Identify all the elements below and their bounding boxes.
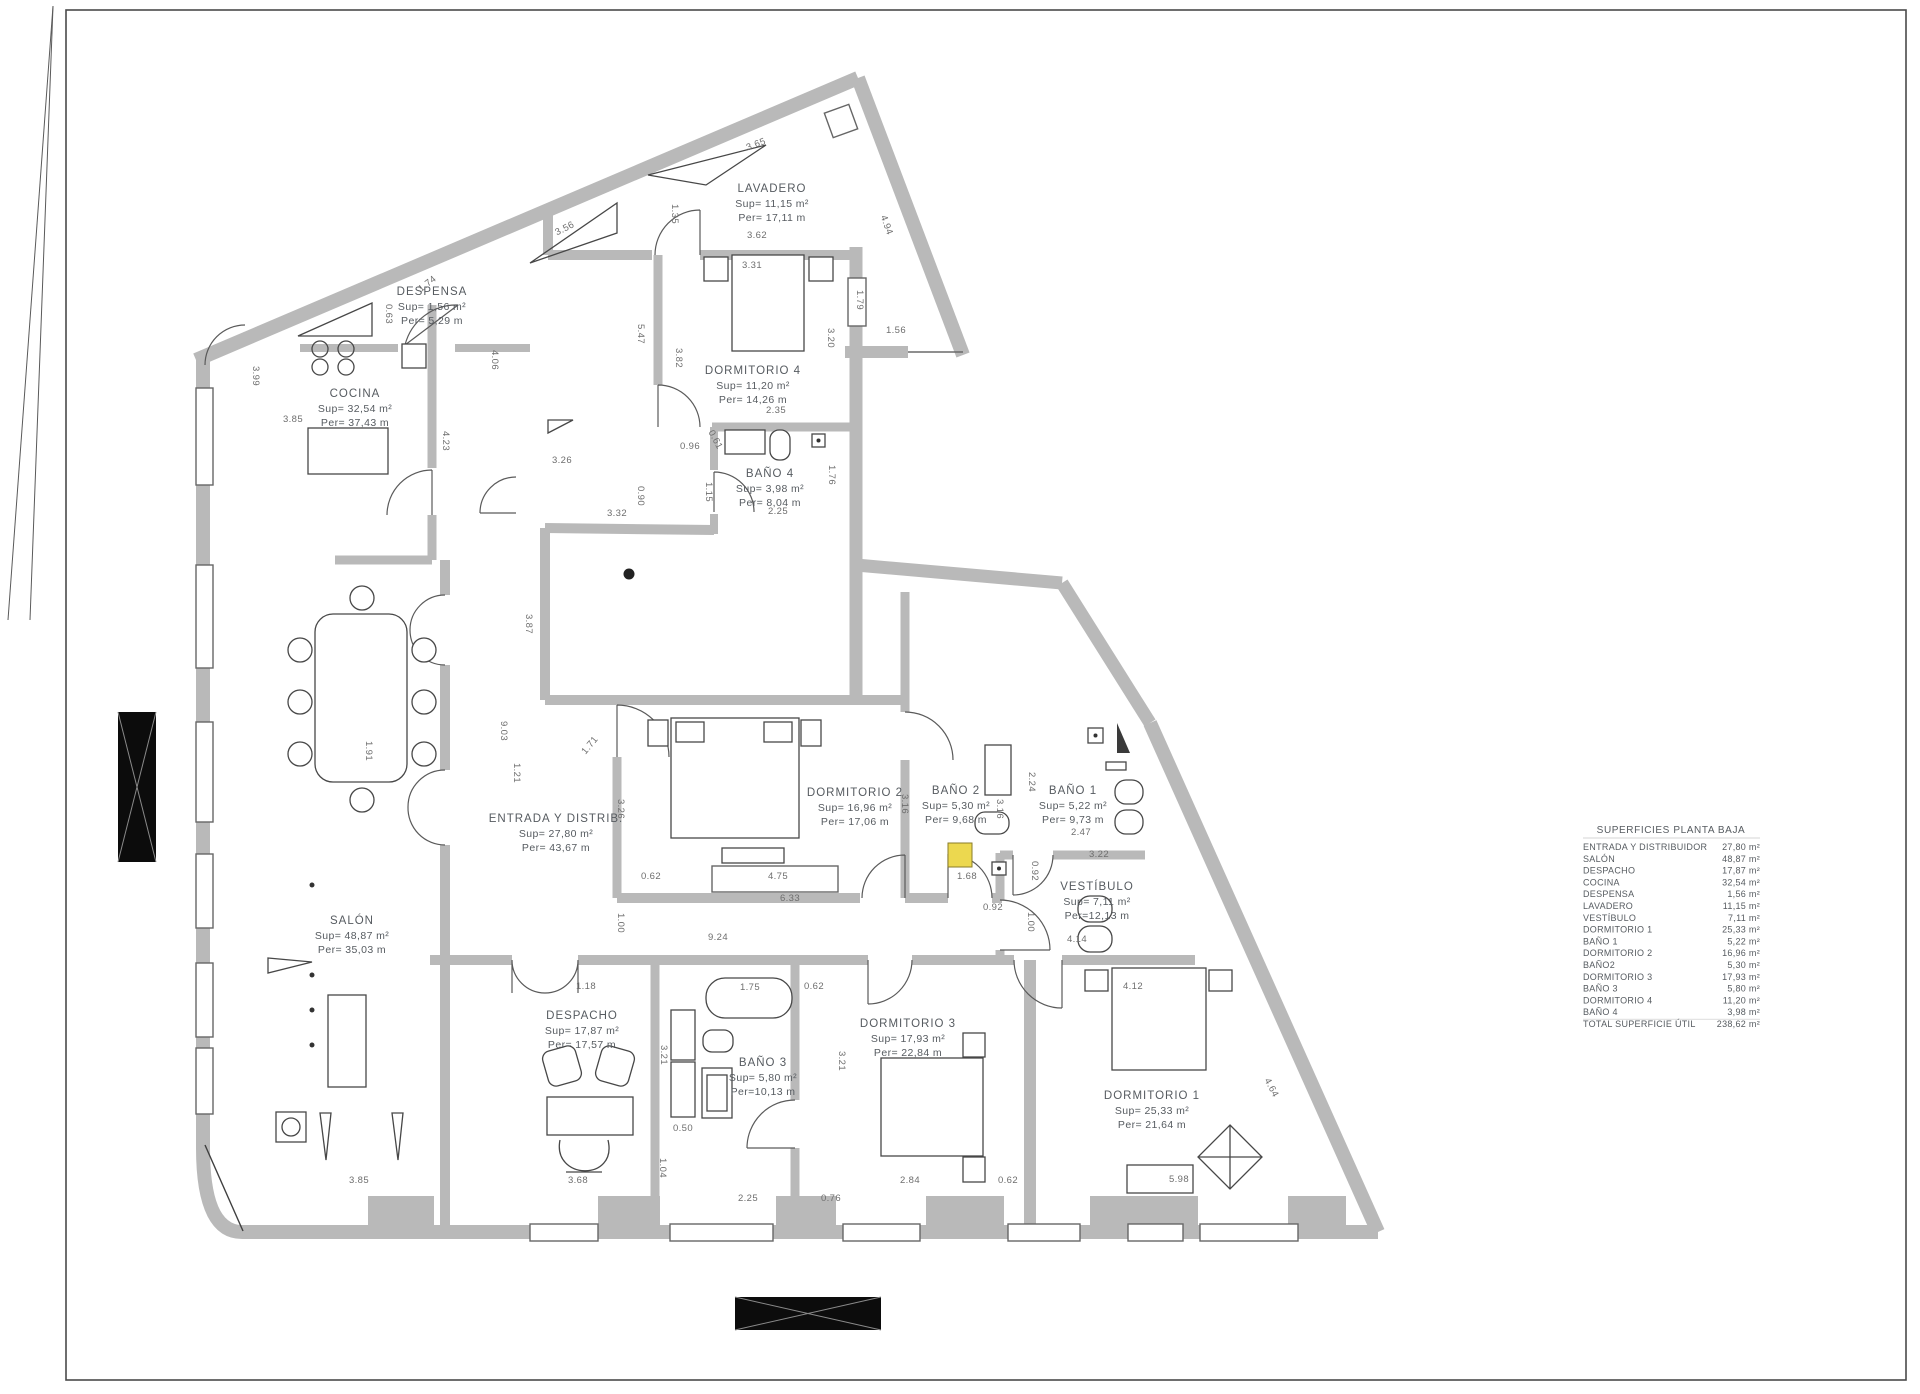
nightstand (963, 1157, 985, 1182)
dim-label: 2.25 (768, 506, 788, 517)
legend-row-value: 7,11 m² (1728, 913, 1760, 923)
dot-marker (997, 867, 1001, 871)
dim-label: 1.15 (703, 482, 714, 502)
site-boundary-line-2 (30, 6, 53, 620)
room-name-bano4: BAÑO 4 (746, 467, 794, 480)
nightstand (963, 1033, 985, 1057)
dim-label: 1.00 (1025, 912, 1036, 932)
room-sup-dormitorio3: Sup= 17,93 m² (871, 1033, 945, 1045)
dim-label: 1.00 (615, 913, 626, 933)
dim-label: 1.35 (669, 204, 680, 224)
room-per-despensa: Per= 5,29 m (401, 315, 463, 327)
legend-row-value: 5,22 m² (1727, 936, 1760, 946)
bano2-highlight-square (948, 843, 972, 867)
dim-label: 1.18 (576, 981, 596, 992)
room-per-cocina: Per= 37,43 m (321, 417, 389, 429)
wall-patio-top (545, 528, 714, 530)
patio-dot (624, 569, 635, 580)
salon-stove (276, 1112, 306, 1142)
window (196, 854, 213, 928)
room-sup-entrada: Sup= 27,80 m² (519, 828, 593, 840)
bathroom-cabinet (671, 1062, 695, 1117)
legend-row-value: 5,80 m² (1727, 984, 1760, 994)
dim-label: 3.56 (553, 219, 576, 238)
dim-label: 5.47 (635, 324, 646, 344)
dim-label: 3.99 (250, 366, 261, 386)
legend-row-name: DORMITORIO 2 (1583, 948, 1652, 958)
door-pasillo (480, 477, 516, 513)
room-per-dormitorio3: Per= 22,84 m (874, 1047, 942, 1059)
wall-right-block-top (856, 565, 1062, 583)
dot-marker (310, 973, 315, 978)
legend-row-value: 16,96 m² (1722, 948, 1760, 958)
dot-marker (1094, 734, 1098, 738)
nightstand (704, 257, 728, 281)
room-name-cocina: COCINA (330, 388, 381, 400)
dim-label: 1.56 (886, 325, 906, 336)
vanity (725, 430, 765, 454)
salon-speaker (320, 1113, 331, 1160)
dim-label: 0.62 (804, 981, 824, 992)
room-name-bano1: BAÑO 1 (1049, 784, 1097, 797)
dim-label: 1.79 (854, 290, 865, 310)
room-name-dormitorio2: DORMITORIO 2 (807, 787, 903, 799)
dim-label: 1.21 (511, 763, 522, 783)
legend-row-value: 11,15 m² (1723, 901, 1760, 911)
dim-label: 4.06 (489, 350, 500, 370)
chair (350, 788, 374, 812)
nightstand (1209, 970, 1232, 991)
room-sup-bano2: Sup= 5,30 m² (922, 800, 990, 812)
room-per-entrada: Per= 43,67 m (522, 842, 590, 854)
room-sup-salon: Sup= 48,87 m² (315, 930, 389, 942)
dot-marker (310, 1043, 315, 1048)
dim-label: 9.03 (498, 721, 509, 741)
dim-label: 1.76 (826, 465, 837, 485)
bench (722, 848, 784, 863)
room-name-bano2: BAÑO 2 (932, 784, 980, 797)
legend-title: SUPERFICIES PLANTA BAJA (1597, 825, 1746, 836)
floor-plan-svg: LAVADEROSup= 11,15 m²Per= 17,11 mDESPENS… (0, 0, 1920, 1394)
dim-label: 9.24 (708, 932, 728, 943)
nightstand (1085, 970, 1108, 991)
desk (547, 1097, 633, 1135)
window (196, 388, 213, 485)
legend-row-name: BAÑO 1 (1583, 936, 1618, 946)
room-per-despacho: Per= 17,57 m (548, 1039, 616, 1051)
dim-label: 2.25 (738, 1193, 758, 1204)
dim-label: 3.16 (899, 794, 910, 814)
room-name-dormitorio1: DORMITORIO 1 (1104, 1090, 1200, 1102)
legend-row-value: 27,80 m² (1722, 842, 1760, 852)
dim-label: 3.68 (568, 1175, 588, 1186)
legend-row-value: 11,20 m² (1723, 995, 1760, 1005)
legend-row-value: 17,93 m² (1722, 972, 1760, 982)
legend-row-name: BAÑO 4 (1583, 1007, 1618, 1017)
dot-marker (817, 439, 821, 443)
sink (1115, 780, 1143, 804)
room-name-dormitorio4: DORMITORIO 4 (705, 365, 801, 377)
shaft-marker-left (118, 712, 156, 862)
room-name-despensa: DESPENSA (397, 286, 468, 298)
dim-label: 1.68 (957, 871, 977, 882)
legend-row-value: 48,87 m² (1722, 854, 1760, 864)
dim-label: 4.64 (1262, 1076, 1281, 1099)
legend-row-value: 1,56 m² (1727, 889, 1760, 899)
dim-label: 3.31 (742, 260, 762, 271)
chair (288, 690, 312, 714)
dot-marker (310, 883, 315, 888)
legend-row-value: 25,33 m² (1722, 925, 1760, 935)
window (196, 722, 213, 822)
dim-label: 4.75 (768, 871, 788, 882)
window (530, 1224, 598, 1241)
legend-row-value: 5,30 m² (1727, 960, 1760, 970)
room-per-bano3: Per=10,13 m (731, 1086, 796, 1098)
legend-row-value: 32,54 m² (1722, 877, 1760, 887)
room-sup-dormitorio2: Sup= 16,96 m² (818, 802, 892, 814)
legend-row-name: DESPENSA (1583, 889, 1634, 899)
door-despacho-a (512, 960, 545, 993)
dot-marker (310, 1008, 315, 1013)
nightstand (809, 257, 833, 281)
office-chair (559, 1140, 609, 1172)
dim-label: 5.98 (1169, 1174, 1189, 1185)
sink (1115, 810, 1143, 834)
stove-burner-icon (312, 359, 328, 375)
door-cocina (387, 470, 432, 515)
window (1008, 1224, 1080, 1241)
dim-label: 3.16 (994, 799, 1005, 819)
room-name-lavadero: LAVADERO (738, 183, 807, 195)
window (670, 1224, 773, 1241)
room-per-bano1: Per= 9,73 m (1042, 814, 1104, 826)
legend-row-name: LAVADERO (1583, 901, 1633, 911)
chair (288, 742, 312, 766)
door-salon-b (408, 770, 445, 845)
bathroom-cabinet (671, 1010, 695, 1060)
wall-pier (598, 1196, 660, 1232)
room-per-bano2: Per= 9,68 m (925, 814, 987, 826)
chair (288, 638, 312, 662)
wall-right-diag-short (1062, 583, 1150, 723)
dim-label: 0.76 (821, 1193, 841, 1204)
room-name-despacho: DESPACHO (546, 1010, 618, 1022)
toilet (770, 430, 790, 460)
dim-label: 6.33 (780, 893, 800, 904)
room-sup-dormitorio4: Sup= 11,20 m² (716, 380, 790, 392)
room-sup-despacho: Sup= 17,87 m² (545, 1025, 619, 1037)
legend-row-name: DESPACHO (1583, 866, 1635, 876)
door-bano2-top (905, 712, 953, 760)
legend-row-value: 238,62 m² (1717, 1019, 1760, 1029)
dim-label: 4.23 (440, 431, 451, 451)
door-dormitorio2-b (862, 855, 905, 898)
shower-corner (1117, 723, 1130, 753)
dining-table (315, 614, 407, 782)
window (843, 1224, 920, 1241)
dim-label: 3.85 (349, 1175, 369, 1186)
toilet (703, 1030, 733, 1052)
room-name-bano3: BAÑO 3 (739, 1056, 787, 1069)
dim-label: 0.61 (706, 428, 725, 451)
legend-row-name: BAÑO2 (1583, 960, 1615, 970)
window (196, 963, 213, 1037)
nightstand (648, 720, 668, 746)
dim-label: 2.24 (1026, 772, 1037, 792)
dim-label: 3.21 (658, 1045, 669, 1065)
bed (881, 1058, 983, 1156)
room-sup-despensa: Sup= 1,56 m² (398, 301, 466, 313)
dim-label: 3.85 (283, 414, 303, 425)
door-bano3 (747, 1100, 795, 1148)
dim-label: 4.94 (878, 214, 895, 237)
dim-label: 2.84 (900, 1175, 920, 1186)
door-dormitorio3 (868, 960, 912, 1004)
dim-label: 0.62 (998, 1175, 1018, 1186)
room-per-vestibulo: Per=12,13 m (1065, 910, 1130, 922)
wall-ext-topright-diagonal (858, 78, 963, 355)
room-sup-dormitorio1: Sup= 25,33 m² (1115, 1105, 1189, 1117)
dim-label: 3.20 (825, 328, 836, 348)
room-sup-lavadero: Sup= 11,15 m² (735, 198, 809, 210)
kitchen-island (308, 428, 388, 474)
window (196, 565, 213, 668)
kitchen-sink (402, 344, 426, 368)
dim-label: 0.90 (635, 486, 646, 506)
room-sup-cocina: Sup= 32,54 m² (318, 403, 392, 415)
shower-column (985, 745, 1011, 795)
plan-sheet: LAVADEROSup= 11,15 m²Per= 17,11 mDESPENS… (0, 0, 1920, 1394)
legend-row-name: VESTÍBULO (1583, 913, 1636, 923)
door-vestibulo (1000, 900, 1050, 950)
nightstand (801, 720, 821, 746)
dim-label: 3.62 (747, 230, 767, 241)
legend-row-name: TOTAL SUPERFICIE ÚTIL (1583, 1019, 1696, 1029)
legend-table: SUPERFICIES PLANTA BAJAENTRADA Y DISTRIB… (1583, 825, 1760, 1029)
dim-label: 2.47 (1071, 827, 1091, 838)
dim-label: 3.22 (1089, 849, 1109, 860)
legend-row-value: 17,87 m² (1722, 866, 1760, 876)
legend-row-name: SALÓN (1583, 854, 1615, 864)
skylight-marker (824, 104, 857, 137)
site-boundary-line (8, 6, 53, 620)
wall-pier (926, 1196, 1004, 1232)
dim-label: 3.65 (745, 136, 768, 153)
dim-label: 0.50 (673, 1123, 693, 1134)
dim-label: 3.87 (523, 614, 534, 634)
legend-row-name: DORMITORIO 1 (1583, 925, 1652, 935)
room-sup-bano1: Sup= 5,22 m² (1039, 800, 1107, 812)
legend-row-value: 3,98 m² (1727, 1007, 1760, 1017)
chair (412, 742, 436, 766)
dim-label: 3.21 (836, 1051, 847, 1071)
wall-corner-round (203, 1148, 242, 1232)
shaft-marker-bottom (735, 1297, 881, 1330)
salon-speaker (392, 1113, 403, 1160)
window (1200, 1224, 1298, 1241)
salon-shelf (268, 958, 312, 973)
dim-label: 3.32 (607, 508, 627, 519)
salon-cabinet (328, 995, 366, 1087)
dim-label: 4.14 (1067, 934, 1087, 945)
window (196, 1048, 213, 1114)
dim-label: 0.96 (680, 441, 700, 452)
room-per-dormitorio1: Per= 21,64 m (1118, 1119, 1186, 1131)
room-name-entrada: ENTRADA Y DISTRIB. (489, 813, 624, 825)
dim-label: 0.92 (1029, 861, 1040, 881)
room-per-lavadero: Per= 17,11 m (738, 212, 805, 224)
dim-label: 1.04 (657, 1158, 668, 1178)
dim-label: 3.82 (673, 348, 684, 368)
chair (412, 690, 436, 714)
shelf (1106, 762, 1126, 770)
legend-row-name: DORMITORIO 4 (1583, 995, 1652, 1005)
legend-row-name: BAÑO 3 (1583, 984, 1618, 994)
dim-label: 3.26 (552, 455, 572, 466)
legend-row-name: DORMITORIO 3 (1583, 972, 1652, 982)
dim-label: 0.92 (983, 902, 1003, 913)
door-dormitorio4 (658, 385, 700, 427)
window (1128, 1224, 1183, 1241)
room-sup-bano3: Sup= 5,80 m² (729, 1072, 797, 1084)
room-per-dormitorio2: Per= 17,06 m (821, 816, 889, 828)
door-despacho-b (545, 960, 578, 993)
room-name-dormitorio3: DORMITORIO 3 (860, 1018, 956, 1030)
stair-triangle (548, 420, 573, 433)
dim-label: 1.71 (579, 734, 600, 756)
pillow (676, 722, 704, 742)
dim-label: 4.12 (1123, 981, 1143, 992)
room-per-salon: Per= 35,03 m (318, 944, 386, 956)
room-name-vestibulo: VESTÍBULO (1060, 880, 1134, 893)
dim-label: 3.26 (615, 799, 626, 819)
pillow (764, 722, 792, 742)
dim-label: 0.63 (383, 304, 394, 324)
chair (350, 586, 374, 610)
wall-pier (368, 1196, 434, 1232)
legend-row-name: COCINA (1583, 877, 1620, 887)
dim-label: 2.35 (766, 405, 786, 416)
door-dormitorio1 (1014, 960, 1062, 1008)
stove-burner-icon (338, 359, 354, 375)
dim-label: 0.62 (641, 871, 661, 882)
room-sup-bano4: Sup= 3,98 m² (736, 483, 804, 495)
legend-row-name: ENTRADA Y DISTRIBUIDOR (1583, 842, 1707, 852)
chair (412, 638, 436, 662)
dim-label: 1.91 (363, 741, 374, 761)
dim-label: 1.75 (740, 982, 760, 993)
room-sup-vestibulo: Sup= 7,11 m² (1063, 896, 1130, 908)
room-name-salon: SALÓN (330, 914, 374, 927)
